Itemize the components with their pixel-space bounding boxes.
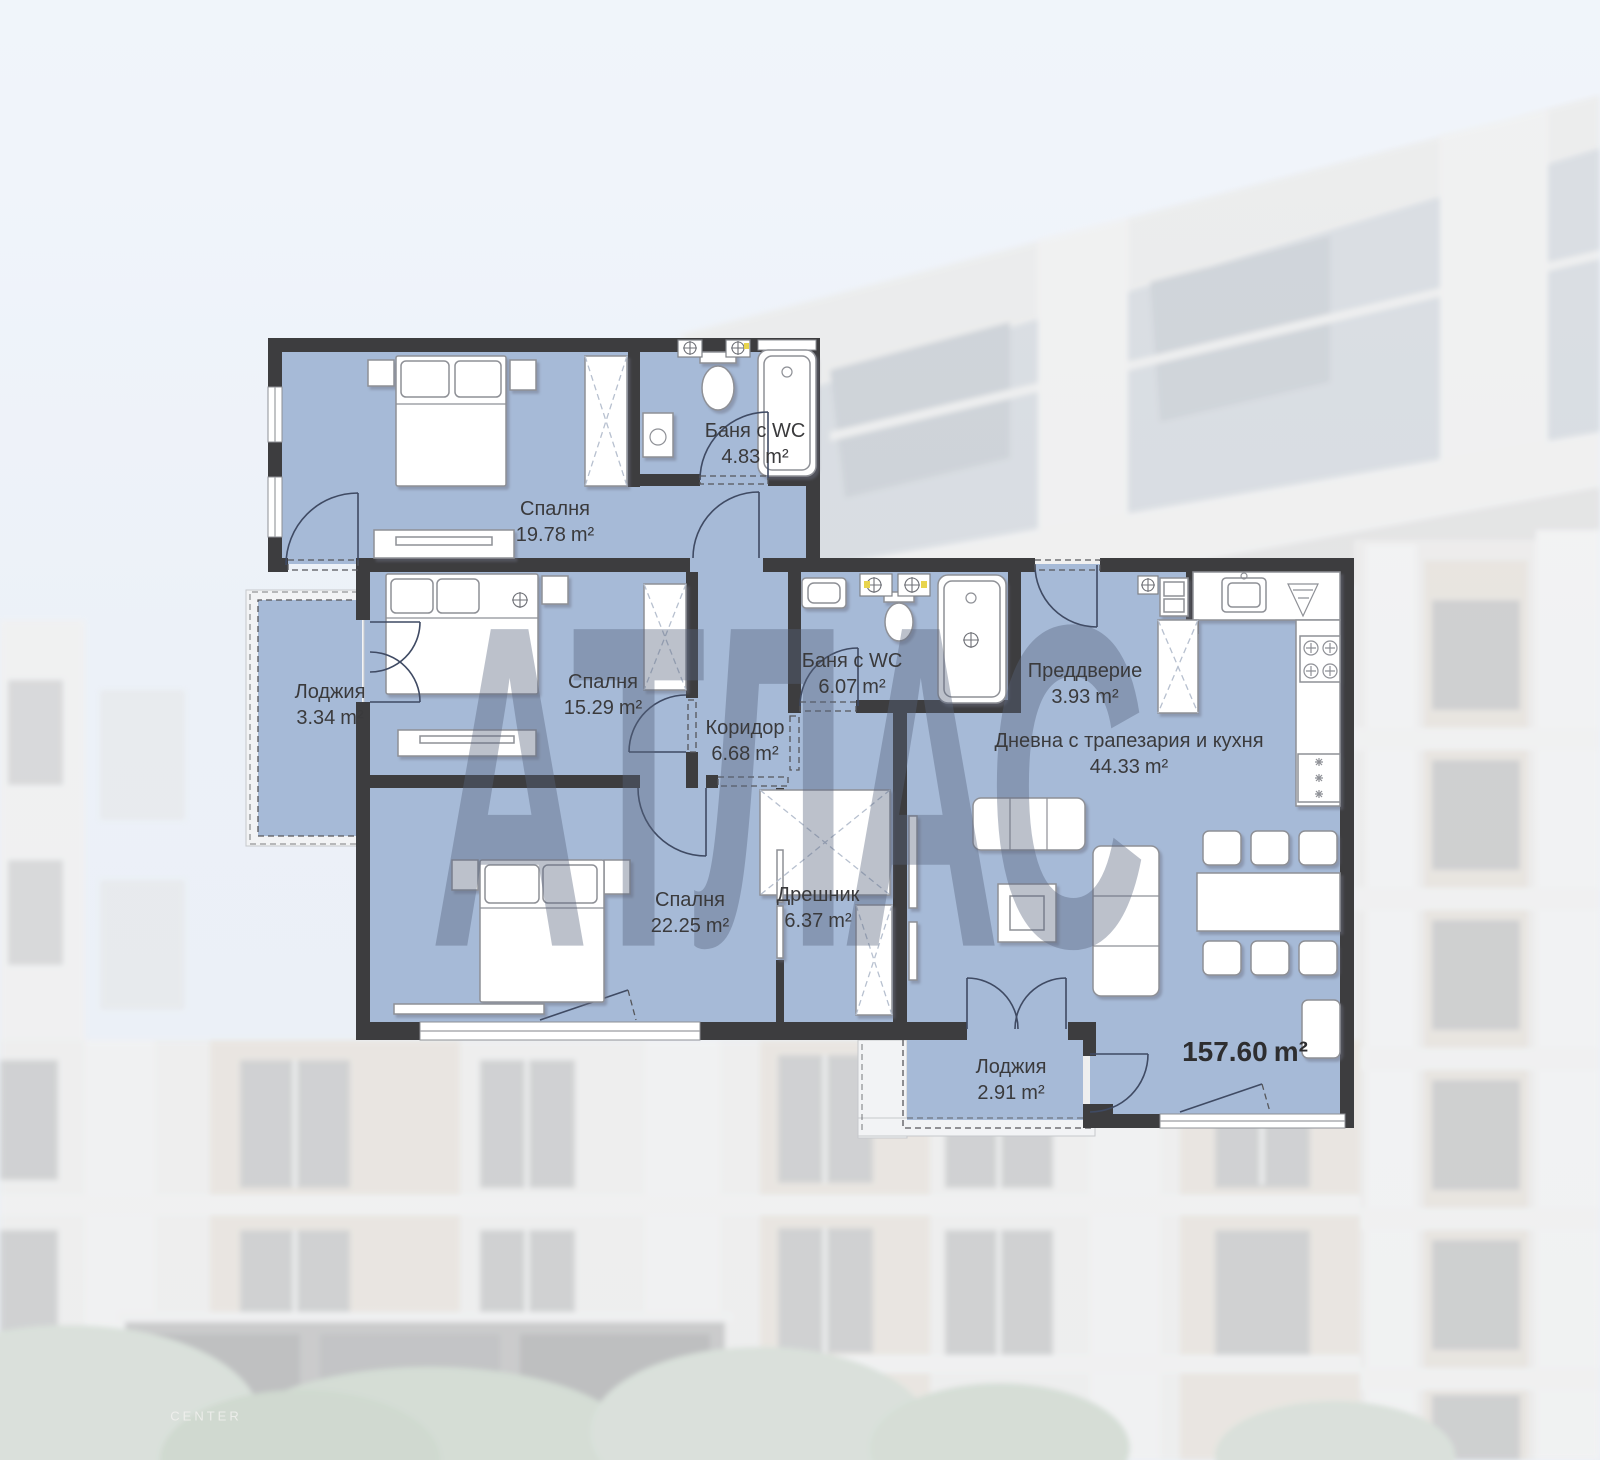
- room-label-bedroom-bottom: Спалня 22.25m²: [651, 887, 729, 939]
- room-label-bedroom-top: Спалня 19.78m²: [516, 496, 594, 548]
- room-label-walk-in-closet: Дрешник 6.37m²: [777, 882, 860, 934]
- floor-plan-page: CENTER: [0, 0, 1600, 1460]
- total-area-label: 157.60m²: [1182, 1036, 1308, 1068]
- room-label-bedroom-middle: Спалня 15.29m²: [564, 669, 642, 721]
- room-label-bathroom-top: Баня с WC 4.83m²: [705, 418, 806, 470]
- room-label-loggia-bottom: Лоджия 2.91m²: [976, 1054, 1047, 1106]
- room-label-bathroom-middle: Баня с WC 6.07m²: [802, 648, 903, 700]
- room-label-vestibule: Преддверие 3.93m²: [1028, 658, 1142, 710]
- room-label-loggia-left: Лоджия 3.34m²: [295, 679, 366, 731]
- room-label-living-dining-kitchen: Дневна с трапезария и кухня 44.33m²: [994, 728, 1263, 780]
- room-labels: Баня с WC 4.83m² Спалня 19.78m² Лоджия 3…: [0, 0, 1600, 1460]
- room-label-corridor: Коридор 6.68m²: [706, 715, 785, 767]
